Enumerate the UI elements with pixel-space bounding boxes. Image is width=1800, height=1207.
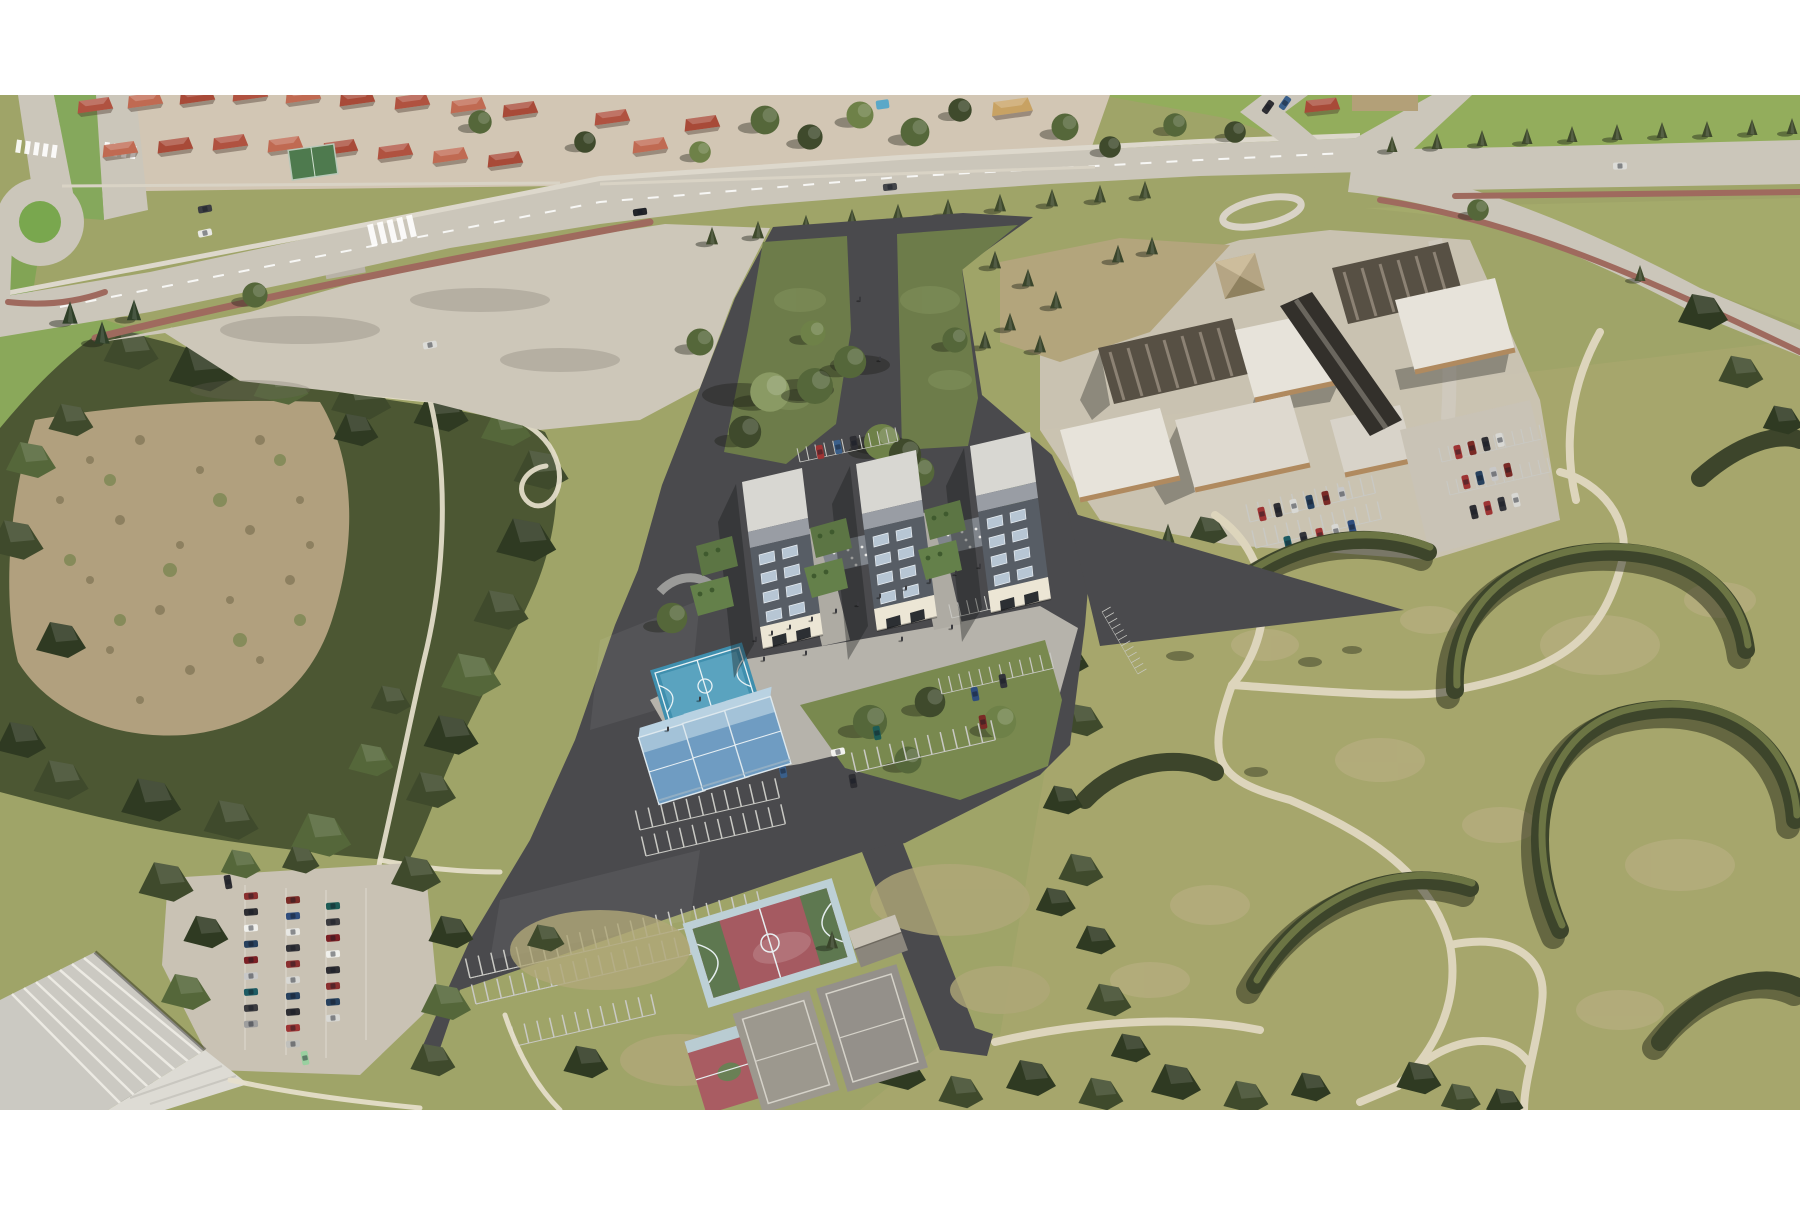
screenshot-root [0,0,1800,1207]
gravel-garden [1352,95,1418,111]
garden-tennis-court [288,144,338,180]
garden-pool [876,99,890,110]
bottom-margin [0,1110,1800,1207]
top-margin [0,0,1800,95]
roundabout-island [19,201,61,243]
cycle-path-right [1455,192,1800,196]
aerial-render-canvas [0,0,1800,1207]
